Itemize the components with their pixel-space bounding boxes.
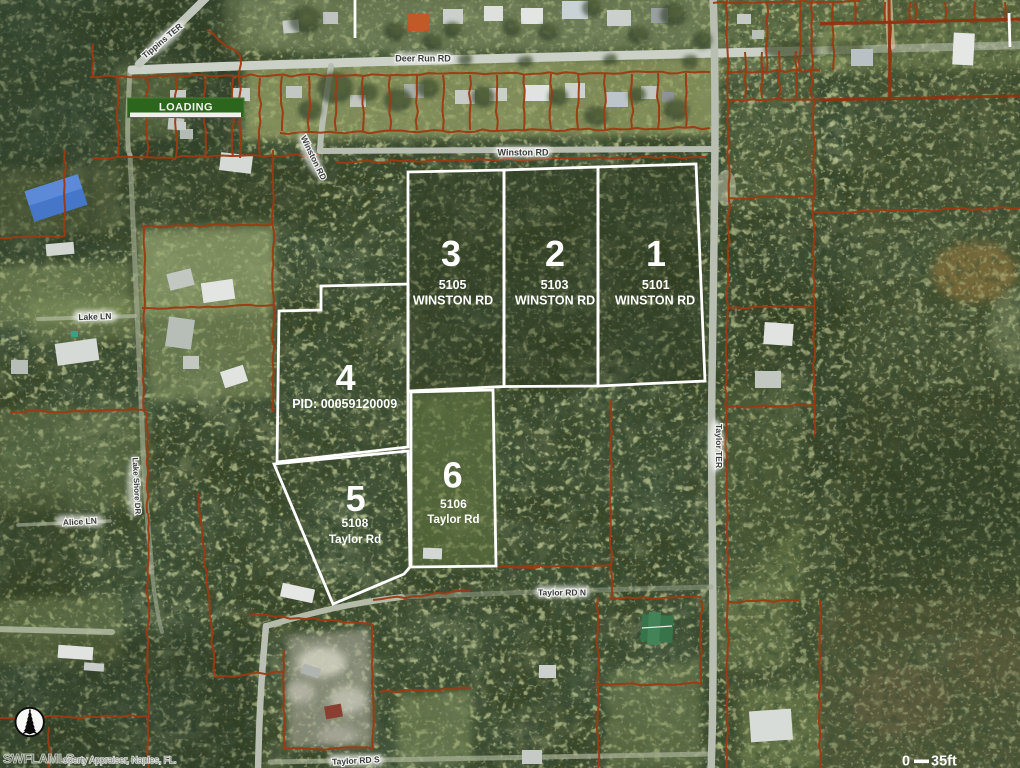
svg-text:35ft: 35ft bbox=[931, 754, 957, 768]
svg-text:Taylor Rd: Taylor Rd bbox=[427, 514, 479, 526]
svg-text:Taylor TER: Taylor TER bbox=[714, 424, 724, 468]
svg-text:Alice LN: Alice LN bbox=[63, 516, 97, 528]
svg-text:Deer Run RD: Deer Run RD bbox=[395, 54, 451, 64]
svg-text:PID: 00059120009: PID: 00059120009 bbox=[292, 397, 397, 411]
svg-text:WINSTON RD: WINSTON RD bbox=[615, 294, 695, 308]
svg-text:5106: 5106 bbox=[440, 497, 467, 511]
svg-text:WINSTON RD: WINSTON RD bbox=[413, 294, 493, 308]
svg-text:Lake LN: Lake LN bbox=[78, 311, 111, 322]
svg-text:0: 0 bbox=[902, 754, 910, 768]
svg-text:4: 4 bbox=[336, 357, 356, 398]
svg-text:LOADING: LOADING bbox=[159, 102, 213, 114]
svg-text:3: 3 bbox=[441, 233, 461, 274]
svg-text:2: 2 bbox=[545, 233, 565, 274]
svg-text:5101: 5101 bbox=[642, 278, 670, 292]
svg-text:Winston RD: Winston RD bbox=[498, 148, 549, 158]
svg-text:5105: 5105 bbox=[439, 278, 467, 292]
svg-text:1: 1 bbox=[646, 233, 666, 274]
svg-text:5103: 5103 bbox=[541, 278, 569, 292]
svg-text:Taylor RD N: Taylor RD N bbox=[538, 588, 586, 598]
svg-text:5: 5 bbox=[346, 478, 366, 519]
svg-text:Taylor Rd: Taylor Rd bbox=[329, 534, 381, 546]
svg-text:5108: 5108 bbox=[342, 516, 369, 530]
svg-text:operty Appraiser, Naples, FL.: operty Appraiser, Naples, FL. bbox=[63, 755, 176, 765]
svg-text:6: 6 bbox=[443, 455, 463, 496]
svg-text:WINSTON RD: WINSTON RD bbox=[515, 294, 595, 308]
